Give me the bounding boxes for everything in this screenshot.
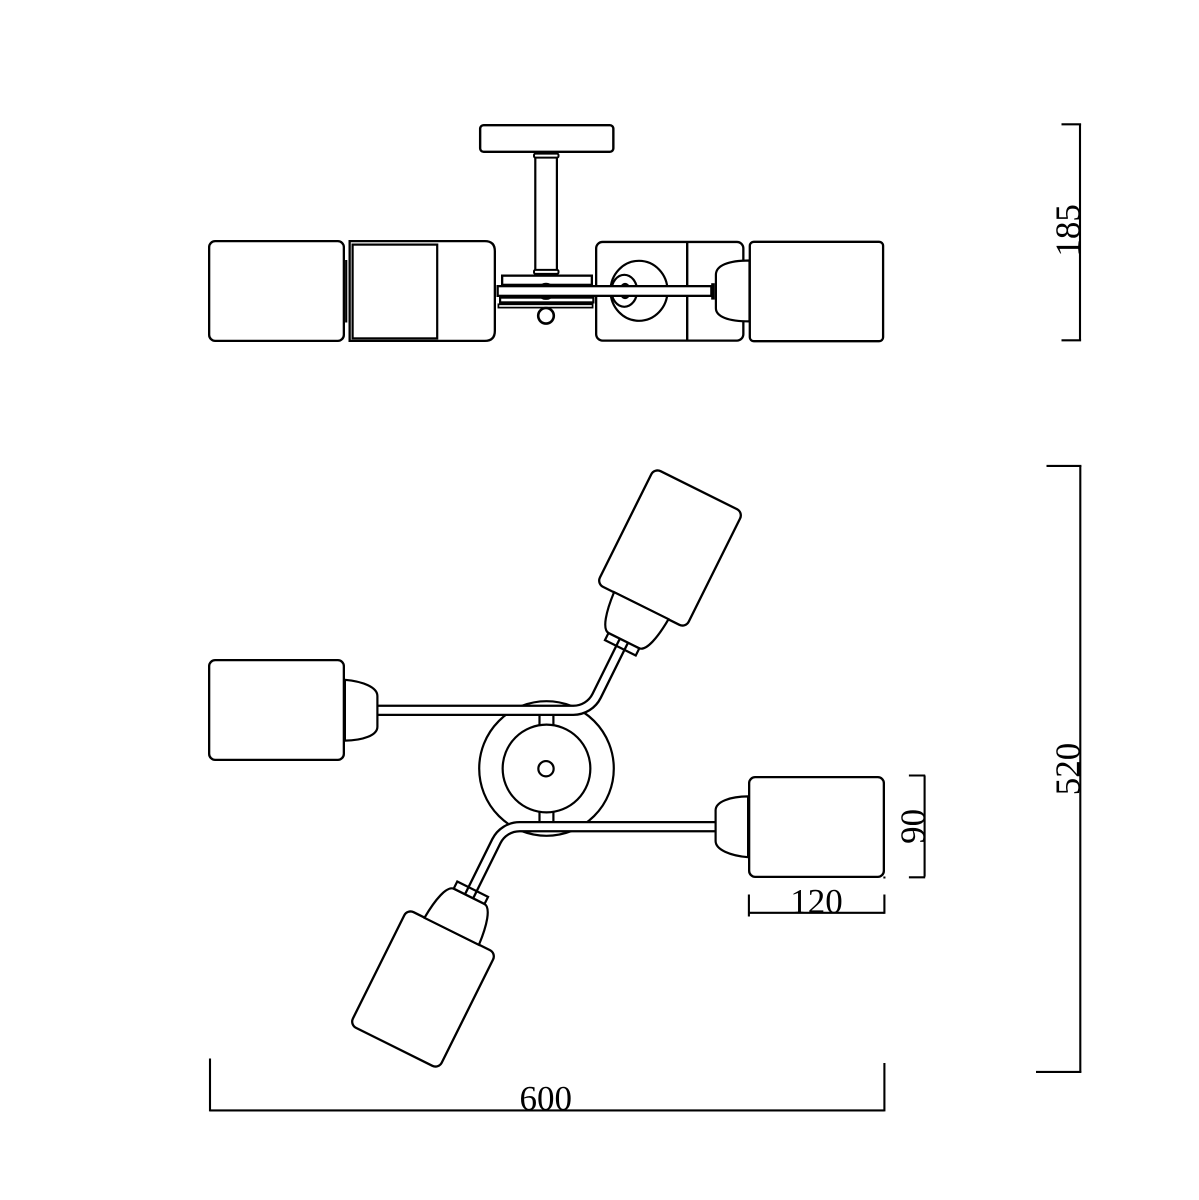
svg-text:600: 600 [519, 1079, 572, 1118]
svg-text:185: 185 [1048, 204, 1087, 257]
svg-text:120: 120 [790, 882, 843, 921]
svg-text:520: 520 [1048, 743, 1087, 796]
svg-text:90: 90 [893, 809, 932, 844]
